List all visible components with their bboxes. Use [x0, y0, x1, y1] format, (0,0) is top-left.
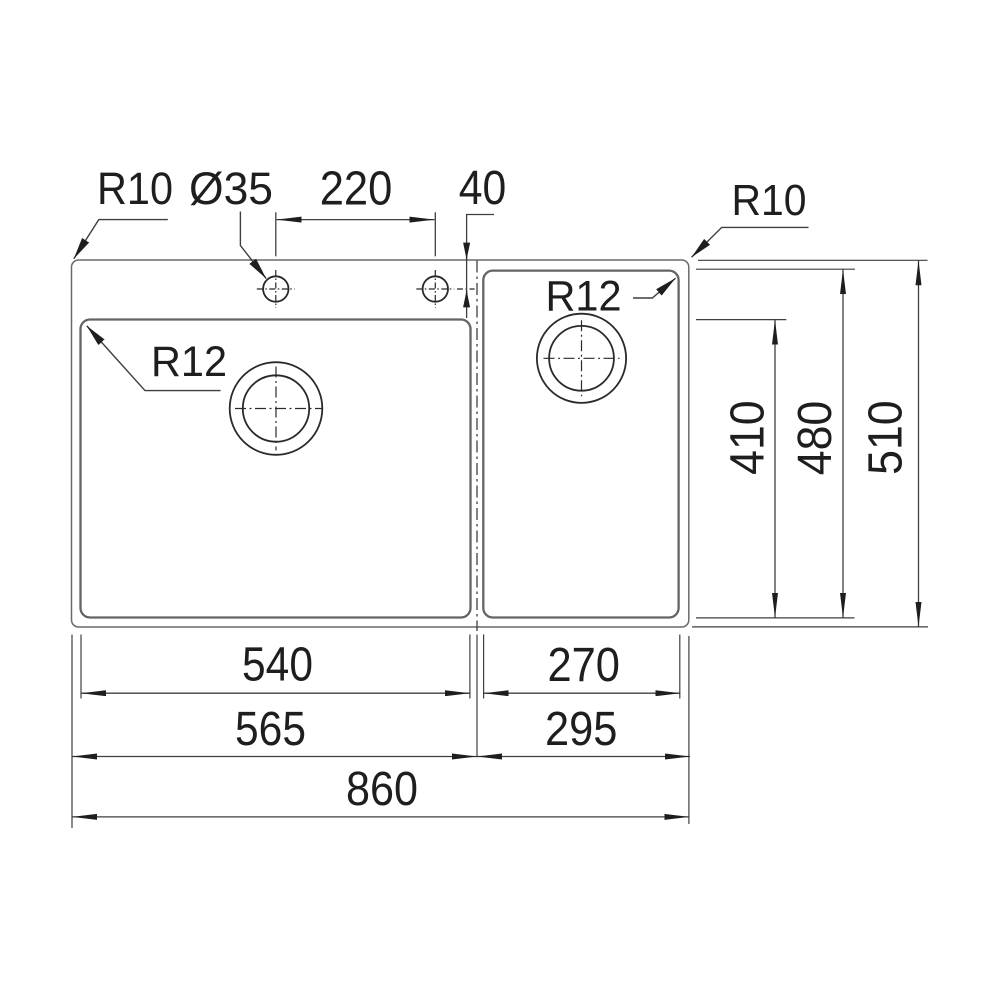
svg-text:220: 220	[320, 163, 393, 216]
svg-text:480: 480	[789, 401, 842, 476]
svg-text:295: 295	[545, 703, 618, 756]
svg-text:Ø35: Ø35	[189, 163, 273, 214]
svg-text:R10: R10	[97, 163, 173, 214]
svg-text:565: 565	[235, 703, 306, 756]
svg-text:40: 40	[459, 162, 507, 215]
svg-text:R12: R12	[151, 338, 227, 386]
svg-text:510: 510	[860, 400, 913, 475]
svg-text:410: 410	[722, 400, 775, 475]
svg-text:270: 270	[547, 639, 620, 692]
svg-text:860: 860	[346, 763, 418, 816]
svg-text:R10: R10	[732, 176, 807, 225]
svg-text:R12: R12	[546, 273, 622, 321]
svg-text:540: 540	[242, 639, 313, 692]
